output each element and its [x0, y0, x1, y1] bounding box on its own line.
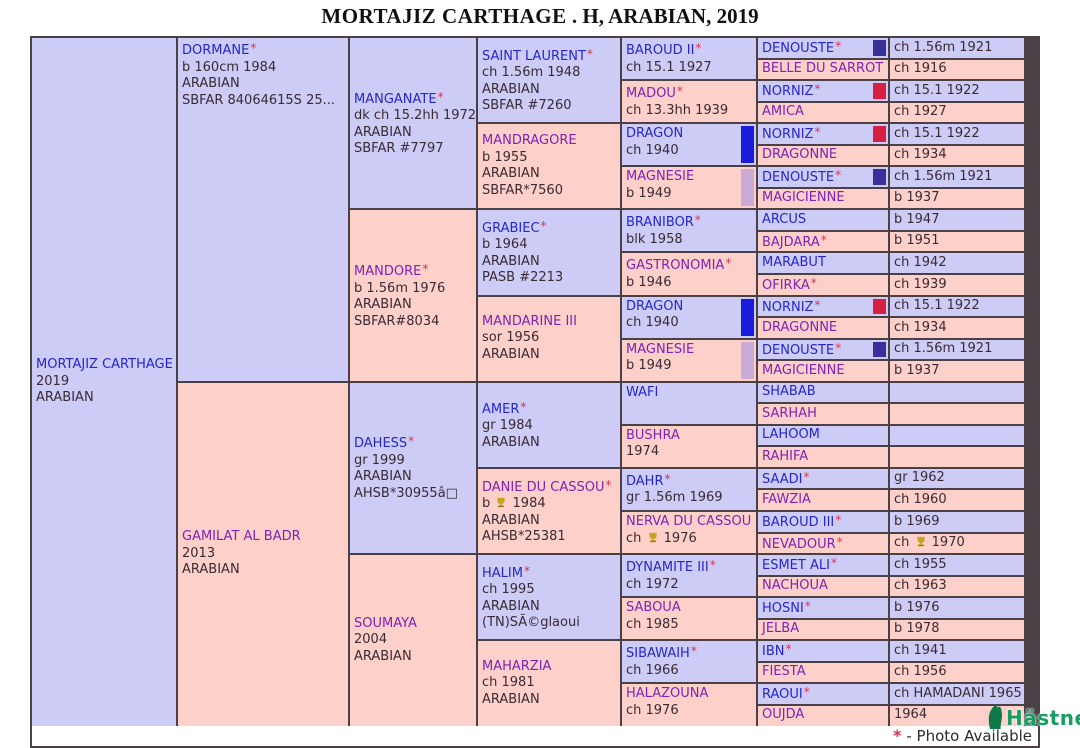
horse-detail-line: ARABIAN [354, 125, 473, 142]
pedigree-cell: ch 1939 [890, 275, 1024, 295]
horse-name-link[interactable]: FAWZIA [762, 492, 811, 507]
horse-detail-line: b 160cm 1984 [182, 60, 345, 77]
horse-name-link[interactable]: DRAGONNE [762, 320, 837, 335]
pedigree-cell: b 1969 [890, 512, 1024, 532]
horse-detail-line: ch 1972 [626, 577, 753, 594]
pedigree-cell: RAHIFA [758, 447, 888, 467]
horse-detail-line: SBFAR #7797 [354, 141, 473, 158]
horse-name-link[interactable]: DRAGON [626, 126, 683, 141]
horse-name-line: HALAZOUNA [626, 686, 753, 703]
horse-detail-line: b 1976 [894, 600, 1021, 617]
horse-detail-line: ARABIAN [482, 82, 617, 99]
horse-name-line: DAHR* [626, 471, 753, 491]
pedigree-cell: MAGICIENNE [758, 361, 888, 381]
horse-name-line: MAGNESIE [626, 342, 753, 359]
pedigree-cell: ch HAMADANI 1965 [890, 684, 1024, 704]
pedigree-cell: NERVA DU CASSOUch 1976 [622, 512, 756, 553]
horse-name-link[interactable]: DENOUSTE [762, 170, 834, 185]
pedigree-cell: ch 1934 [890, 146, 1024, 166]
horse-name-line: OUJDA [762, 707, 885, 724]
horse-detail-line: ch 1942 [894, 255, 1021, 272]
pedigree-cell: BELLE DU SARROT [758, 60, 888, 80]
horse-name-link[interactable]: BRANIBOR [626, 215, 694, 230]
horse-name-line: BAJDARA* [762, 232, 885, 252]
photo-available-asterisk: * [695, 213, 701, 227]
pedigree-cell: MAHARZIAch 1981ARABIAN [478, 641, 620, 725]
horse-name-link[interactable]: NORNIZ [762, 127, 813, 142]
page-title-suffix: . H, ARABIAN, 2019 [567, 4, 759, 28]
blue-flag-icon [741, 299, 754, 336]
pedigree-cell: gr 1962 [890, 469, 1024, 489]
pedigree-cell: SHABAB [758, 383, 888, 403]
horse-name-line: SHABAB [762, 384, 885, 401]
horse-name-link[interactable]: DRAGONNE [762, 147, 837, 162]
award-icon [647, 532, 659, 543]
pedigree-cell: FAWZIA [758, 490, 888, 510]
horse-name-line: MANDRAGORE [482, 133, 617, 150]
horse-detail-line: PASB #2213 [482, 270, 617, 287]
navy-flag-icon [873, 40, 886, 56]
pedigree-cell: ARCUS [758, 210, 888, 230]
photo-available-asterisk: * [814, 82, 820, 96]
horse-name-link[interactable]: SAADI [762, 472, 803, 487]
pedigree-cell: ch 1970 [890, 534, 1024, 554]
horse-name-link[interactable]: MANDRAGORE [482, 133, 577, 148]
pedigree-cell: LAHOOM [758, 426, 888, 446]
horse-name-line: DANIE DU CASSOU* [482, 477, 617, 497]
pedigree-cell [890, 404, 1024, 424]
horse-name-link[interactable]: MAGNESIE [626, 342, 694, 357]
horse-name-line: BAROUD III* [762, 512, 885, 532]
horse-name-link[interactable]: NACHOUA [762, 578, 828, 593]
horse-name-line: MANDORE* [354, 261, 473, 281]
horse-name-link[interactable]: GRABIEC [482, 221, 540, 236]
page-title: MORTAJIZ CARTHAGE . H, ARABIAN, 2019 [0, 4, 1080, 29]
horse-name-link[interactable]: FIESTA [762, 664, 806, 679]
horse-name-line: SABOUA [626, 600, 753, 617]
pedigree-cell: ch 15.1 1922 [890, 81, 1024, 101]
pedigree-cell: DENOUSTE* [758, 340, 888, 360]
horse-name-link[interactable]: BELLE DU SARROT [762, 61, 883, 76]
horse-name-link[interactable]: DENOUSTE [762, 343, 834, 358]
horse-name-link[interactable]: HALIM [482, 566, 523, 581]
lavender-flag-icon [741, 342, 754, 379]
pedigree-cell [890, 383, 1024, 403]
horse-name-line: ARCUS [762, 212, 885, 229]
pedigree-cell: MANDORE*b 1.56m 1976ARABIANSBFAR#8034 [350, 210, 476, 380]
horse-name-link[interactable]: BAJDARA [762, 235, 820, 250]
photo-available-asterisk: * [691, 644, 697, 658]
photo-available-asterisk: * [725, 256, 731, 270]
pedigree-cell: HALAZOUNAch 1976 [622, 684, 756, 725]
horse-detail-line: 2019 [36, 374, 173, 391]
horse-name-line: DENOUSTE* [762, 167, 885, 187]
horse-detail-line: ch 1960 [894, 492, 1021, 509]
horse-name-link[interactable]: SIBAWAIH [626, 646, 690, 661]
pedigree-cell: RAOUI* [758, 684, 888, 704]
pedigree-cell: SARHAH [758, 404, 888, 424]
red-flag-icon [873, 83, 886, 99]
horse-detail-line: 1964 [894, 707, 1021, 724]
pedigree-cell: BAROUD III* [758, 512, 888, 532]
horse-detail-line: gr 1999 [354, 453, 473, 470]
photo-available-asterisk: * [250, 41, 256, 55]
pedigree-cell: DAHESS*gr 1999ARABIANAHSB*30955â□ [350, 383, 476, 553]
horse-detail-line: gr 1.56m 1969 [626, 490, 753, 507]
horse-detail-line: AHSB*30955â□ [354, 486, 473, 503]
horse-detail-line: b 1947 [894, 212, 1021, 229]
pedigree-cell: DORMANE*b 160cm 1984ARABIANSBFAR 8406461… [178, 38, 348, 381]
horse-name-link[interactable]: SABOUA [626, 600, 681, 615]
pedigree-cell: ch 1916 [890, 60, 1024, 80]
pedigree-cell: ch 1927 [890, 103, 1024, 123]
horse-name-link[interactable]: DAHR [626, 474, 663, 489]
footer-note: * - Photo Available [32, 726, 1038, 746]
pedigree-cell: NORNIZ* [758, 124, 888, 144]
pedigree-cell: BAJDARA* [758, 232, 888, 252]
horse-name-link[interactable]: SARHAH [762, 406, 817, 421]
horse-detail-line: ARABIAN [482, 692, 617, 709]
horse-name-link[interactable]: RAOUI [762, 687, 803, 702]
horse-name-line: DENOUSTE* [762, 340, 885, 360]
horse-detail-line: ch 1941 [894, 643, 1021, 660]
horse-name-link[interactable]: DRAGON [626, 299, 683, 314]
photo-available-asterisk: * [785, 642, 791, 656]
horse-detail-line: ch 1976 [626, 703, 753, 720]
horse-name-line: SAINT LAURENT* [482, 46, 617, 66]
horse-detail-line: SBFAR 84064615S 25... [182, 93, 345, 110]
pedigree-cell: GAMILAT AL BADR2013ARABIAN [178, 383, 348, 726]
pedigree-cell: ch 1.56m 1921 [890, 38, 1024, 58]
pedigree-cell [890, 426, 1024, 446]
horse-name-line: MARABUT [762, 255, 885, 272]
horse-name-line: FIESTA [762, 664, 885, 681]
photo-available-asterisk: * [422, 262, 428, 276]
pedigree-cell: SIBAWAIH*ch 1966 [622, 641, 756, 682]
horse-detail-line: AHSB*25381 [482, 529, 617, 546]
pedigree-cell: SABOUAch 1985 [622, 598, 756, 639]
horse-detail-line: b 1951 [894, 233, 1021, 250]
pedigree-grid: MORTAJIZ CARTHAGE2019ARABIANDORMANE*b 16… [32, 38, 1038, 726]
horse-name-link[interactable]: DYNAMITE III [626, 560, 709, 575]
horse-name-link[interactable]: AMICA [762, 104, 804, 119]
horse-detail-line: ch 15.1 1927 [626, 60, 753, 77]
horse-name-link[interactable]: JELBA [762, 621, 799, 636]
horse-name-link[interactable]: NEVADOUR [762, 537, 836, 552]
pedigree-cell: SOUMAYA2004ARABIAN [350, 555, 476, 725]
photo-available-asterisk: * [541, 219, 547, 233]
horse-name-line: RAOUI* [762, 684, 885, 704]
horse-detail-line: ch 1934 [894, 320, 1021, 337]
horse-detail-line: ch 1976 [626, 531, 753, 548]
horse-name-link[interactable]: MAGICIENNE [762, 363, 845, 378]
horse-name-link[interactable]: SOUMAYA [354, 616, 417, 631]
horse-detail-line: ARABIAN [482, 599, 617, 616]
pedigree-cell: NEVADOUR* [758, 534, 888, 554]
pedigree-cell: ch 1955 [890, 555, 1024, 575]
pedigree-cell: ESMET ALI* [758, 555, 888, 575]
horse-name-line: HOSNI* [762, 598, 885, 618]
pedigree-cell: FIESTA [758, 663, 888, 683]
horse-name-link[interactable]: ARCUS [762, 212, 806, 227]
horse-detail-line: ch 1.56m 1921 [894, 40, 1021, 57]
pedigree-cell: 1964 [890, 706, 1024, 726]
horse-name-line: IBN* [762, 641, 885, 661]
horse-name-link[interactable]: DAHESS [354, 436, 407, 451]
photo-available-asterisk: * [814, 298, 820, 312]
horse-name-line: DAHESS* [354, 433, 473, 453]
horse-detail-line: SBFAR #7260 [482, 98, 617, 115]
horse-detail-line: ARABIAN [182, 562, 345, 579]
horse-name-line: MANDARINE III [482, 314, 617, 331]
pedigree-cell: MAGICIENNE [758, 189, 888, 209]
horse-detail-line: ch 1.56m 1921 [894, 169, 1021, 186]
photo-available-asterisk: * [605, 478, 611, 492]
pedigree-cell: ch 1934 [890, 318, 1024, 338]
horse-detail-line: ch 1927 [894, 104, 1021, 121]
horse-detail-line: b 1949 [626, 186, 753, 203]
horse-detail-line: ch 1916 [894, 61, 1021, 78]
horse-detail-line: b 1955 [482, 150, 617, 167]
horse-name-line: SOUMAYA [354, 616, 473, 633]
page-title-horse-name: MORTAJIZ CARTHAGE [321, 4, 566, 28]
horse-name-link[interactable]: DENOUSTE [762, 41, 834, 56]
photo-available-asterisk: * [438, 90, 444, 104]
horse-detail-line: gr 1962 [894, 470, 1021, 487]
horse-detail-line: b 1937 [894, 363, 1021, 380]
horse-name-line: FAWZIA [762, 492, 885, 509]
horse-name-link[interactable]: MANGANATE [354, 92, 437, 107]
horse-detail-line: ch 1.56m 1921 [894, 341, 1021, 358]
pedigree-cell: ch 1941 [890, 641, 1024, 661]
pedigree-cell: NORNIZ* [758, 297, 888, 317]
horse-detail-line: b 1946 [626, 275, 753, 292]
horse-detail-line: b 1949 [626, 358, 753, 375]
award-icon [495, 497, 507, 508]
horse-name-link[interactable]: LAHOOM [762, 427, 820, 442]
horse-name-link[interactable]: BAROUD III [762, 515, 834, 530]
horse-name-link[interactable]: HALAZOUNA [626, 686, 708, 701]
horse-name-link[interactable]: BAROUD II [626, 43, 694, 58]
horse-detail-line: 2013 [182, 546, 345, 563]
horse-detail-line: ch 1934 [894, 147, 1021, 164]
horse-detail-line: sor 1956 [482, 330, 617, 347]
pedigree-cell: b 1951 [890, 232, 1024, 252]
horse-name-link[interactable]: NORNIZ [762, 84, 813, 99]
pedigree-cell: GRABIEC*b 1964ARABIANPASB #2213 [478, 210, 620, 294]
horse-name-link[interactable]: MANDORE [354, 264, 421, 279]
horse-name-line: MAHARZIA [482, 659, 617, 676]
horse-name-line: HALIM* [482, 563, 617, 583]
horse-name-link[interactable]: DANIE DU CASSOU [482, 480, 604, 495]
horse-name-line: GAMILAT AL BADR [182, 529, 345, 546]
horse-name-link[interactable]: MORTAJIZ CARTHAGE [36, 357, 173, 372]
horse-name-link[interactable]: MAHARZIA [482, 659, 551, 674]
pedigree-cell: IBN* [758, 641, 888, 661]
photo-available-asterisk: * [677, 84, 683, 98]
horse-name-link[interactable]: MANDARINE III [482, 314, 577, 329]
pedigree-cell: MAGNESIEb 1949 [622, 340, 756, 381]
horse-name-link[interactable]: OUJDA [762, 707, 804, 722]
pedigree-cell: OUJDA [758, 706, 888, 726]
award-icon [915, 536, 927, 547]
horse-name-line: LAHOOM [762, 427, 885, 444]
photo-available-asterisk: * [835, 341, 841, 355]
photo-available-asterisk: * [664, 472, 670, 486]
photo-available-asterisk: * [835, 168, 841, 182]
pedigree-cell: DRAGONNE [758, 146, 888, 166]
pedigree-cell: GASTRONOMIA*b 1946 [622, 253, 756, 294]
navy-flag-icon [873, 342, 886, 358]
horse-detail-line: ch 15.1 1922 [894, 298, 1021, 315]
pedigree-cell: ch 15.1 1922 [890, 124, 1024, 144]
photo-available-label: - Photo Available [906, 727, 1032, 745]
horse-detail-line: b 1.56m 1976 [354, 281, 473, 298]
horse-detail-line: blk 1958 [626, 232, 753, 249]
horse-detail-line: b 1969 [894, 514, 1021, 531]
horse-name-link[interactable]: MAGNESIE [626, 169, 694, 184]
horse-detail-line: ARABIAN [482, 166, 617, 183]
photo-available-asterisk: * [520, 400, 526, 414]
horse-detail-line: (TN)SÃ©glaoui [482, 615, 617, 632]
pedigree-cell: HALIM*ch 1995ARABIAN(TN)SÃ©glaoui [478, 555, 620, 639]
pedigree-cell: ch 1.56m 1921 [890, 340, 1024, 360]
pedigree-cell: MANDARINE IIIsor 1956ARABIAN [478, 297, 620, 381]
horse-detail-line: ch 1940 [626, 143, 753, 160]
pedigree-cell: DENOUSTE* [758, 38, 888, 58]
photo-available-asterisk: * [837, 535, 843, 549]
horse-name-link[interactable]: BUSHRA [626, 428, 680, 443]
red-flag-icon [873, 126, 886, 142]
pedigree-cell: MADOU*ch 13.3hh 1939 [622, 81, 756, 122]
photo-available-asterisk: * [408, 434, 414, 448]
horse-detail-line: 2004 [354, 632, 473, 649]
pedigree-cell: DRAGONNE [758, 318, 888, 338]
pedigree-cell: b 1937 [890, 189, 1024, 209]
pedigree-cell: b 1947 [890, 210, 1024, 230]
horse-detail-line: ARABIAN [482, 513, 617, 530]
blue-flag-icon [741, 126, 754, 163]
horse-name-line: AMICA [762, 104, 885, 121]
photo-available-asterisk: * [804, 685, 810, 699]
horse-detail-line: ARABIAN [36, 390, 173, 407]
horse-name-link[interactable]: ESMET ALI [762, 558, 830, 573]
red-flag-icon [873, 299, 886, 315]
horse-name-line: SIBAWAIH* [626, 643, 753, 663]
horse-detail-line: ch 1955 [894, 557, 1021, 574]
photo-available-asterisk: * [805, 599, 811, 613]
horse-name-link[interactable]: AMER [482, 402, 519, 417]
pedigree-cell: SAINT LAURENT*ch 1.56m 1948ARABIANSBFAR … [478, 38, 620, 122]
horse-detail-line: ch 1966 [626, 663, 753, 680]
photo-available-asterisk: * [893, 726, 901, 745]
horse-name-line: GRABIEC* [482, 218, 617, 238]
horse-name-line: DRAGON [626, 299, 753, 316]
horse-detail-line: b 1964 [482, 237, 617, 254]
pedigree-cell: b 1978 [890, 620, 1024, 640]
horse-name-line: GASTRONOMIA* [626, 255, 753, 275]
horse-name-line: DRAGONNE [762, 147, 885, 164]
horse-name-line: DORMANE* [182, 40, 345, 60]
horse-name-line: MANGANATE* [354, 89, 473, 109]
pedigree-cell: SAADI* [758, 469, 888, 489]
pedigree-cell: ch 1942 [890, 253, 1024, 273]
pedigree-cell: MANGANATE*dk ch 15.2hh 1972ARABIANSBFAR … [350, 38, 476, 208]
horse-name-line: MAGNESIE [626, 169, 753, 186]
pedigree-cell: DYNAMITE III*ch 1972 [622, 555, 756, 596]
horse-detail-line: ch 13.3hh 1939 [626, 103, 753, 120]
horse-detail-line: ch HAMADANI 1965 [894, 686, 1021, 703]
horse-detail-line: dk ch 15.2hh 1972 [354, 108, 473, 125]
horse-name-line: BUSHRA [626, 428, 753, 445]
horse-detail-line: ch 1940 [626, 315, 753, 332]
pedigree-table: MORTAJIZ CARTHAGE2019ARABIANDORMANE*b 16… [30, 36, 1040, 748]
horse-detail-line: ARABIAN [354, 469, 473, 486]
pedigree-cell: MANDRAGOREb 1955ARABIANSBFAR*7560 [478, 124, 620, 208]
horse-name-line: SARHAH [762, 406, 885, 423]
pedigree-cell: DENOUSTE* [758, 167, 888, 187]
horse-name-link[interactable]: HOSNI [762, 601, 804, 616]
horse-name-link[interactable]: MARABUT [762, 255, 826, 270]
horse-detail-line: 1974 [626, 444, 753, 461]
pedigree-cell: HOSNI* [758, 598, 888, 618]
horse-name-link[interactable]: RAHIFA [762, 449, 808, 464]
horse-name-line: MADOU* [626, 83, 753, 103]
pedigree-cell: DAHR*gr 1.56m 1969 [622, 469, 756, 510]
horse-name-link[interactable]: WAFI [626, 385, 658, 400]
horse-name-link[interactable]: GASTRONOMIA [626, 258, 724, 273]
horse-name-link[interactable]: SHABAB [762, 384, 816, 399]
horse-name-line: NORNIZ* [762, 124, 885, 144]
horse-name-link[interactable]: MADOU [626, 86, 676, 101]
pedigree-cell: WAFI [622, 383, 756, 424]
pedigree-cell: ch 1.56m 1921 [890, 167, 1024, 187]
horse-name-link[interactable]: NORNIZ [762, 300, 813, 315]
horse-detail-line: SBFAR#8034 [354, 314, 473, 331]
photo-available-asterisk: * [814, 125, 820, 139]
horse-name-line: AMER* [482, 399, 617, 419]
horse-name-link[interactable]: IBN [762, 644, 784, 659]
horse-name-line: RAHIFA [762, 449, 885, 466]
horse-detail-line: ch 1956 [894, 664, 1021, 681]
horse-name-line: DYNAMITE III* [626, 557, 753, 577]
horse-detail-line: ARABIAN [482, 254, 617, 271]
pedigree-cell: b 1937 [890, 361, 1024, 381]
pedigree-cell: BAROUD II*ch 15.1 1927 [622, 38, 756, 79]
horse-detail-line: ARABIAN [354, 297, 473, 314]
navy-flag-icon [873, 169, 886, 185]
horse-detail-line: ch 1970 [894, 535, 1021, 552]
horse-name-link[interactable]: DORMANE [182, 43, 249, 58]
photo-available-asterisk: * [835, 39, 841, 53]
horse-detail-line: ARABIAN [182, 76, 345, 93]
horse-name-link[interactable]: GAMILAT AL BADR [182, 529, 301, 544]
pedigree-cell: ch 1956 [890, 663, 1024, 683]
photo-available-asterisk: * [710, 558, 716, 572]
horse-detail-line: ch 1981 [482, 675, 617, 692]
lavender-flag-icon [741, 169, 754, 206]
horse-name-link[interactable]: SAINT LAURENT [482, 49, 586, 64]
horse-detail-line: ARABIAN [482, 435, 617, 452]
horse-name-link[interactable]: MAGICIENNE [762, 190, 845, 205]
horse-name-line: DRAGONNE [762, 320, 885, 337]
horse-detail-line: ARABIAN [482, 347, 617, 364]
horse-name-link[interactable]: NERVA DU CASSOU [626, 514, 751, 529]
horse-detail-line: ch 1.56m 1948 [482, 65, 617, 82]
horse-name-link[interactable]: OFIRKA [762, 278, 810, 293]
pedigree-cell: ch 1960 [890, 490, 1024, 510]
horse-name-line: MAGICIENNE [762, 363, 885, 380]
